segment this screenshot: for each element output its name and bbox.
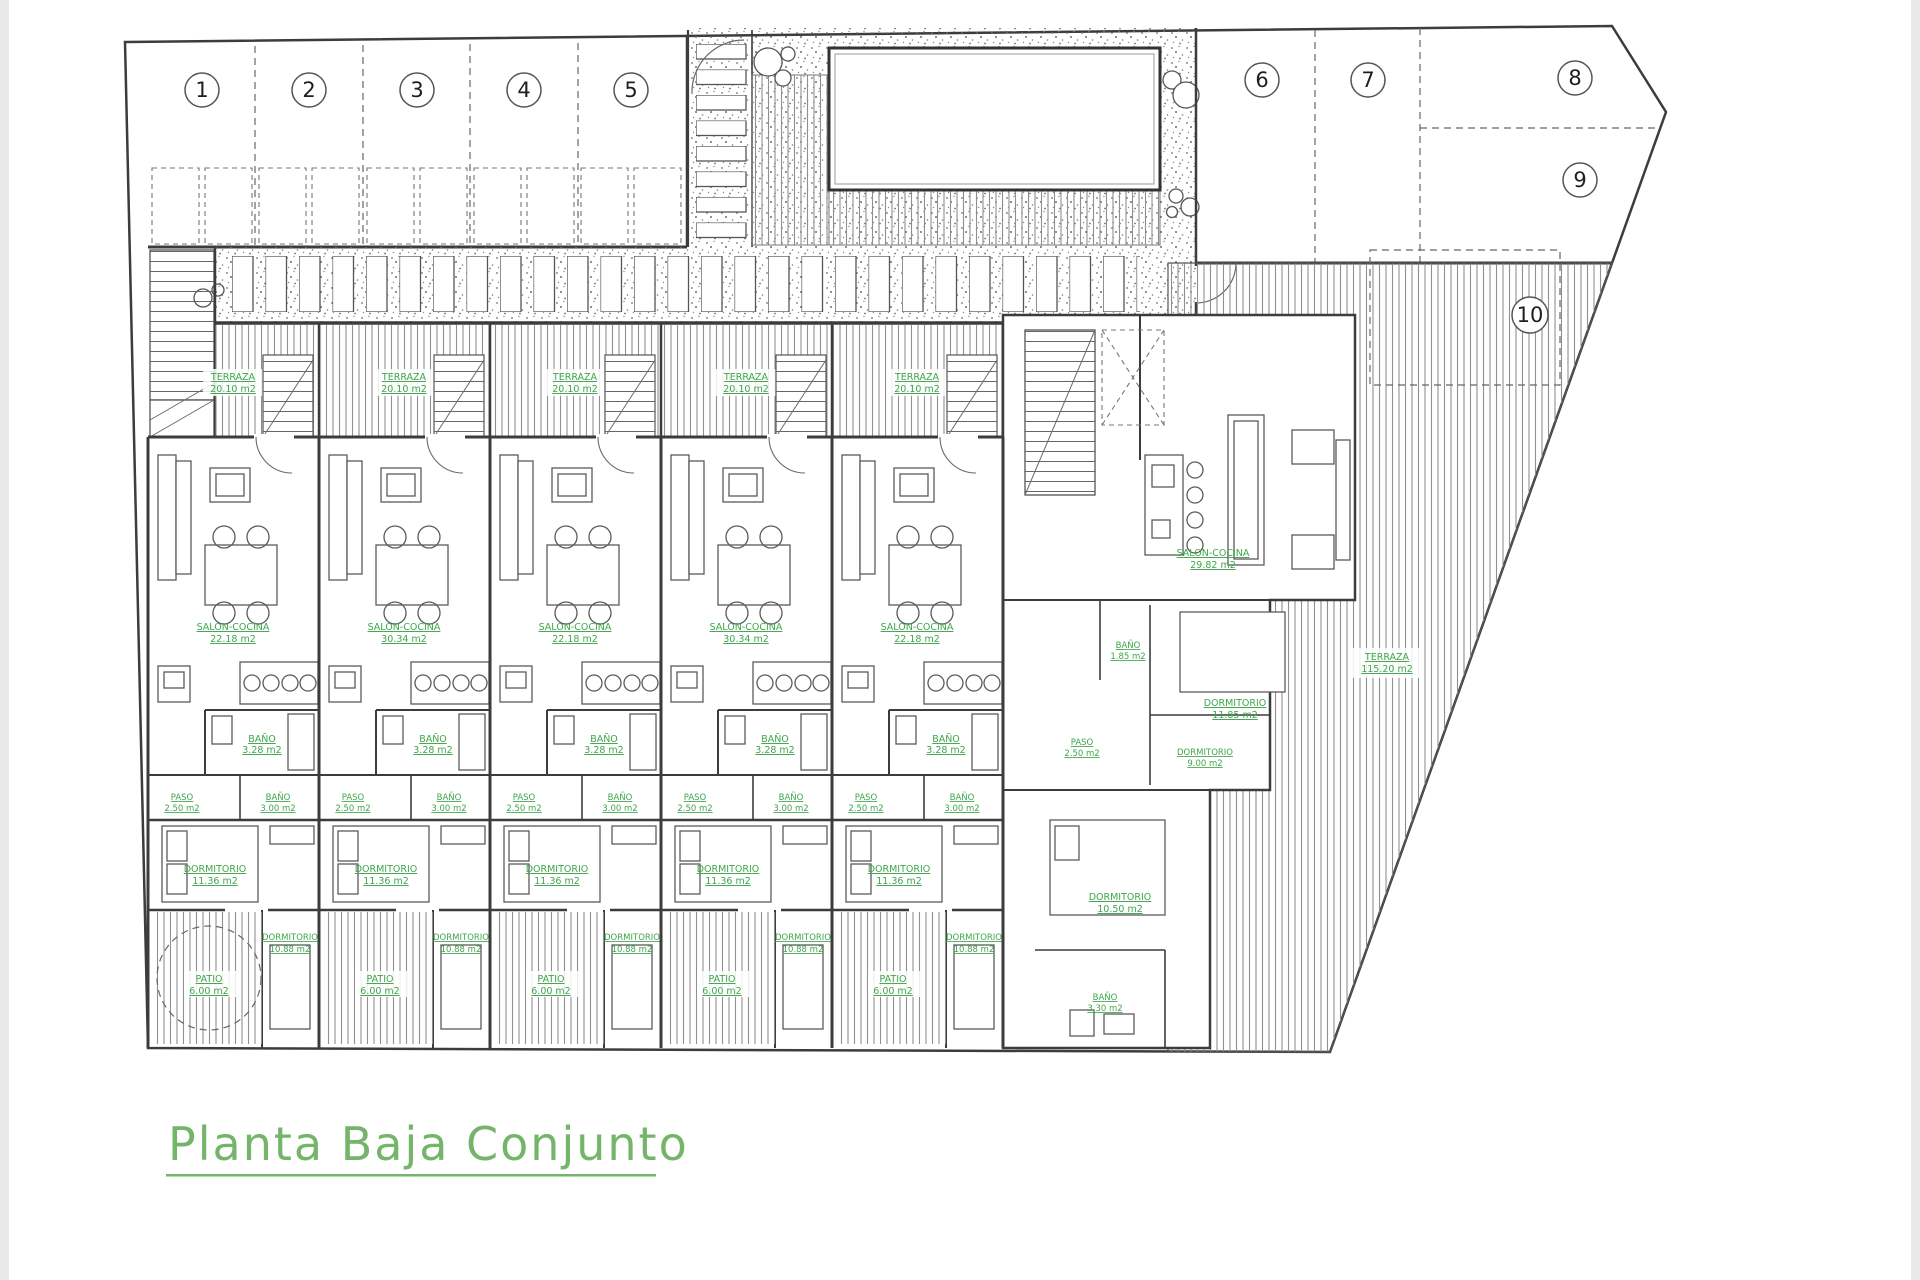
- svg-text:20.10 m2: 20.10 m2: [210, 384, 256, 395]
- svg-text:PASO: PASO: [1071, 738, 1094, 748]
- parking-space-circle-3: 3: [400, 73, 434, 107]
- svg-text:SALON-COCINA: SALON-COCINA: [368, 622, 441, 633]
- svg-text:3.28 m2: 3.28 m2: [755, 745, 794, 756]
- svg-text:20.10 m2: 20.10 m2: [894, 384, 940, 395]
- svg-text:2.50 m2: 2.50 m2: [506, 804, 541, 814]
- svg-text:20.10 m2: 20.10 m2: [723, 384, 769, 395]
- svg-text:SALON-COCINA: SALON-COCINA: [539, 622, 612, 633]
- floor-plan-svg: 1 2 3 4 5: [0, 0, 1920, 1280]
- svg-text:10.88 m2: 10.88 m2: [441, 945, 482, 955]
- svg-text:TERRAZA: TERRAZA: [552, 372, 598, 383]
- svg-text:DORMITORIO: DORMITORIO: [868, 864, 931, 875]
- walkway-slats: [692, 40, 748, 240]
- drawing-title: Planta Baja Conjunto: [166, 1117, 689, 1177]
- svg-text:10.88 m2: 10.88 m2: [270, 945, 311, 955]
- svg-text:TERRAZA: TERRAZA: [894, 372, 940, 383]
- svg-text:PASO: PASO: [684, 793, 707, 803]
- svg-text:BAÑO: BAÑO: [248, 734, 276, 745]
- svg-text:3.28 m2: 3.28 m2: [584, 745, 623, 756]
- svg-text:11.36 m2: 11.36 m2: [192, 876, 238, 887]
- svg-text:2: 2: [302, 78, 315, 102]
- svg-text:9.00 m2: 9.00 m2: [1187, 759, 1222, 769]
- svg-text:DORMITORIO: DORMITORIO: [604, 933, 660, 943]
- svg-text:3.28 m2: 3.28 m2: [242, 745, 281, 756]
- svg-text:10.88 m2: 10.88 m2: [612, 945, 653, 955]
- svg-text:PATIO: PATIO: [367, 974, 394, 985]
- svg-text:11.36 m2: 11.36 m2: [534, 876, 580, 887]
- svg-text:DORMITORIO: DORMITORIO: [355, 864, 418, 875]
- svg-text:6.00 m2: 6.00 m2: [873, 986, 912, 997]
- parking-space-circle-2: 2: [292, 73, 326, 107]
- svg-text:10.88 m2: 10.88 m2: [954, 945, 995, 955]
- svg-text:3.00 m2: 3.00 m2: [260, 804, 295, 814]
- svg-text:BAÑO: BAÑO: [1093, 992, 1118, 1003]
- terrace-stair: [776, 355, 826, 437]
- svg-text:3.28 m2: 3.28 m2: [413, 745, 452, 756]
- svg-text:6.00 m2: 6.00 m2: [702, 986, 741, 997]
- svg-text:3.28 m2: 3.28 m2: [926, 745, 965, 756]
- svg-text:4: 4: [517, 78, 530, 102]
- svg-text:PATIO: PATIO: [709, 974, 736, 985]
- svg-text:SALON-COCINA: SALON-COCINA: [881, 622, 954, 633]
- svg-text:BAÑO: BAÑO: [608, 792, 633, 803]
- svg-text:6: 6: [1255, 68, 1268, 92]
- terrace-stair: [263, 355, 313, 437]
- svg-text:6.00 m2: 6.00 m2: [189, 986, 228, 997]
- parking-space-circle-8: 8: [1558, 61, 1592, 95]
- svg-text:BAÑO: BAÑO: [932, 734, 960, 745]
- floor-plan-page: 1 2 3 4 5: [0, 0, 1920, 1280]
- svg-text:29.82 m2: 29.82 m2: [1190, 560, 1236, 571]
- svg-text:2.50 m2: 2.50 m2: [1064, 749, 1099, 759]
- stepping-stones: [232, 256, 1140, 312]
- pool-deck-south: [829, 190, 1160, 245]
- svg-text:BAÑO: BAÑO: [950, 792, 975, 803]
- svg-text:10: 10: [1517, 303, 1544, 327]
- svg-text:BAÑO: BAÑO: [419, 734, 447, 745]
- svg-text:PATIO: PATIO: [538, 974, 565, 985]
- svg-text:22.18 m2: 22.18 m2: [894, 634, 940, 645]
- svg-text:SALON-COCINA: SALON-COCINA: [1177, 548, 1250, 559]
- svg-text:3.00 m2: 3.00 m2: [602, 804, 637, 814]
- svg-text:BAÑO: BAÑO: [761, 734, 789, 745]
- svg-text:3.00 m2: 3.00 m2: [431, 804, 466, 814]
- svg-text:PASO: PASO: [171, 793, 194, 803]
- terrace-stair: [605, 355, 655, 437]
- parking-space-circle-4: 4: [507, 73, 541, 107]
- svg-text:TERRAZA: TERRAZA: [210, 372, 256, 383]
- svg-text:10.50 m2: 10.50 m2: [1097, 904, 1143, 915]
- svg-text:1: 1: [195, 78, 208, 102]
- svg-text:2.50 m2: 2.50 m2: [677, 804, 712, 814]
- terrace-stair: [947, 355, 997, 437]
- svg-text:BAÑO: BAÑO: [266, 792, 291, 803]
- svg-text:DORMITORIO: DORMITORIO: [433, 933, 489, 943]
- svg-text:1.85 m2: 1.85 m2: [1110, 652, 1145, 662]
- svg-text:115.20 m2: 115.20 m2: [1361, 664, 1413, 675]
- svg-text:TERRAZA: TERRAZA: [723, 372, 769, 383]
- svg-text:20.10 m2: 20.10 m2: [381, 384, 427, 395]
- svg-text:20.10 m2: 20.10 m2: [552, 384, 598, 395]
- svg-text:DORMITORIO: DORMITORIO: [946, 933, 1002, 943]
- svg-text:3.00 m2: 3.00 m2: [944, 804, 979, 814]
- svg-text:DORMITORIO: DORMITORIO: [775, 933, 831, 943]
- svg-text:2.50 m2: 2.50 m2: [848, 804, 883, 814]
- parking-space-circle-1: 1: [185, 73, 219, 107]
- parking-space-circle-5: 5: [614, 73, 648, 107]
- parking-space-circle-6: 6: [1245, 63, 1279, 97]
- page-title: Planta Baja Conjunto: [168, 1117, 689, 1171]
- svg-text:DORMITORIO: DORMITORIO: [1177, 748, 1233, 758]
- big-terraza-label: TERRAZA 115.20 m2: [1352, 648, 1422, 678]
- stepping-stone-path: [215, 247, 1196, 323]
- svg-text:TERRAZA: TERRAZA: [1364, 652, 1410, 663]
- scan-edge-right: [1911, 0, 1920, 1280]
- svg-text:6.00 m2: 6.00 m2: [531, 986, 570, 997]
- svg-text:TERRAZA: TERRAZA: [381, 372, 427, 383]
- svg-text:DORMITORIO: DORMITORIO: [184, 864, 247, 875]
- svg-text:11.36 m2: 11.36 m2: [876, 876, 922, 887]
- parking-space-circle-9: 9: [1563, 163, 1597, 197]
- svg-text:BAÑO: BAÑO: [1116, 640, 1141, 651]
- svg-text:PATIO: PATIO: [196, 974, 223, 985]
- svg-text:22.18 m2: 22.18 m2: [210, 634, 256, 645]
- pool: [829, 48, 1160, 190]
- svg-text:DORMITORIO: DORMITORIO: [1204, 698, 1267, 709]
- svg-text:10.88 m2: 10.88 m2: [783, 945, 824, 955]
- exterior-stair: [150, 247, 215, 437]
- parking-space-circle-7: 7: [1351, 63, 1385, 97]
- pool-deck: [752, 75, 829, 245]
- svg-text:30.34 m2: 30.34 m2: [381, 634, 427, 645]
- svg-text:11.85 m2: 11.85 m2: [1212, 710, 1258, 721]
- svg-text:PASO: PASO: [513, 793, 536, 803]
- terrace-stair: [434, 355, 484, 437]
- scan-edge-left: [0, 0, 9, 1280]
- svg-text:DORMITORIO: DORMITORIO: [262, 933, 318, 943]
- parking-space-circle-10: 10: [1512, 297, 1548, 333]
- svg-text:DORMITORIO: DORMITORIO: [1089, 892, 1152, 903]
- svg-text:2.50 m2: 2.50 m2: [164, 804, 199, 814]
- svg-text:2.50 m2: 2.50 m2: [335, 804, 370, 814]
- svg-text:SALON-COCINA: SALON-COCINA: [197, 622, 270, 633]
- svg-text:22.18 m2: 22.18 m2: [552, 634, 598, 645]
- svg-text:30.34 m2: 30.34 m2: [723, 634, 769, 645]
- svg-text:6.00 m2: 6.00 m2: [360, 986, 399, 997]
- svg-text:8: 8: [1568, 66, 1581, 90]
- svg-text:BAÑO: BAÑO: [590, 734, 618, 745]
- title-underline: [166, 1174, 656, 1177]
- svg-text:BAÑO: BAÑO: [437, 792, 462, 803]
- svg-text:3.30 m2: 3.30 m2: [1087, 1004, 1122, 1014]
- svg-text:11.36 m2: 11.36 m2: [705, 876, 751, 887]
- svg-text:DORMITORIO: DORMITORIO: [697, 864, 760, 875]
- svg-text:3: 3: [410, 78, 423, 102]
- svg-text:3.00 m2: 3.00 m2: [773, 804, 808, 814]
- svg-text:PASO: PASO: [855, 793, 878, 803]
- svg-text:PASO: PASO: [342, 793, 365, 803]
- svg-text:5: 5: [624, 78, 637, 102]
- svg-text:BAÑO: BAÑO: [779, 792, 804, 803]
- svg-text:DORMITORIO: DORMITORIO: [526, 864, 589, 875]
- svg-text:PATIO: PATIO: [880, 974, 907, 985]
- svg-text:9: 9: [1573, 168, 1586, 192]
- svg-text:SALON-COCINA: SALON-COCINA: [710, 622, 783, 633]
- svg-text:7: 7: [1361, 68, 1374, 92]
- svg-text:11.36 m2: 11.36 m2: [363, 876, 409, 887]
